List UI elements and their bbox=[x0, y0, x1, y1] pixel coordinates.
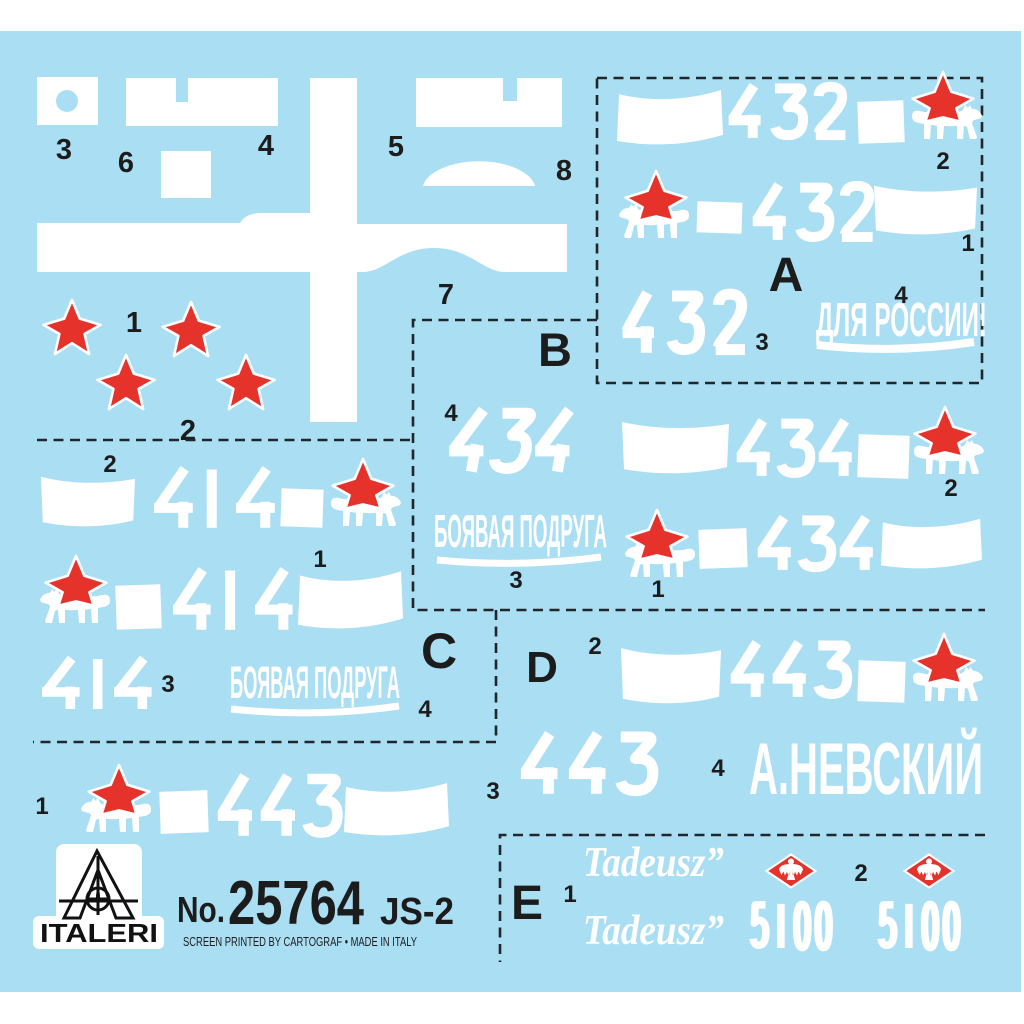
svg-text:БОЯВАЯ ПОДРУГА: БОЯВАЯ ПОДРУГА bbox=[230, 657, 400, 708]
svg-text:1: 1 bbox=[651, 576, 664, 603]
svg-text:ДЛЯ РОССИИ!: ДЛЯ РОССИИ! bbox=[816, 294, 987, 347]
svg-text:2: 2 bbox=[936, 148, 949, 175]
svg-text:D: D bbox=[526, 643, 558, 692]
svg-text:8: 8 bbox=[556, 155, 572, 187]
svg-text:1: 1 bbox=[35, 793, 48, 820]
svg-text:7: 7 bbox=[438, 279, 454, 311]
svg-text:2: 2 bbox=[180, 415, 196, 447]
svg-text:1: 1 bbox=[126, 307, 142, 339]
svg-text:1: 1 bbox=[961, 230, 974, 257]
svg-text:1: 1 bbox=[313, 546, 326, 573]
svg-text:1: 1 bbox=[563, 881, 576, 908]
svg-text:А.НЕВСКИЙ: А.НЕВСКИЙ bbox=[749, 728, 983, 810]
svg-text:25764: 25764 bbox=[228, 869, 364, 938]
svg-text:5: 5 bbox=[388, 131, 404, 163]
svg-text:SCREEN PRINTED BY CARTOGRAF •: SCREEN PRINTED BY CARTOGRAF • MADE IN IT… bbox=[183, 935, 417, 949]
svg-text:4: 4 bbox=[258, 130, 274, 162]
svg-text:ITALERI: ITALERI bbox=[40, 918, 158, 948]
svg-text:2: 2 bbox=[944, 475, 957, 502]
svg-text:Tadeusz”: Tadeusz” bbox=[583, 840, 724, 886]
svg-text:6: 6 bbox=[118, 147, 134, 179]
svg-text:3: 3 bbox=[56, 134, 72, 166]
svg-text:2: 2 bbox=[103, 451, 116, 478]
svg-text:B: B bbox=[538, 323, 572, 376]
svg-text:JS-2: JS-2 bbox=[380, 891, 454, 933]
svg-text:4: 4 bbox=[711, 755, 725, 782]
svg-text:3: 3 bbox=[755, 329, 768, 356]
svg-text:C: C bbox=[421, 623, 457, 679]
svg-text:Tadeusz”: Tadeusz” bbox=[583, 908, 724, 954]
svg-text:2: 2 bbox=[854, 860, 867, 887]
svg-text:3: 3 bbox=[486, 778, 499, 805]
svg-text:E: E bbox=[511, 877, 543, 930]
svg-text:2: 2 bbox=[588, 633, 601, 660]
svg-text:4: 4 bbox=[418, 696, 432, 723]
svg-text:4: 4 bbox=[444, 400, 458, 427]
svg-text:A: A bbox=[769, 249, 804, 302]
svg-text:БОЯВАЯ ПОДРУГА: БОЯВАЯ ПОДРУГА bbox=[434, 505, 607, 557]
svg-text:No.: No. bbox=[177, 889, 225, 930]
svg-text:3: 3 bbox=[509, 567, 522, 594]
svg-text:3: 3 bbox=[161, 671, 174, 698]
